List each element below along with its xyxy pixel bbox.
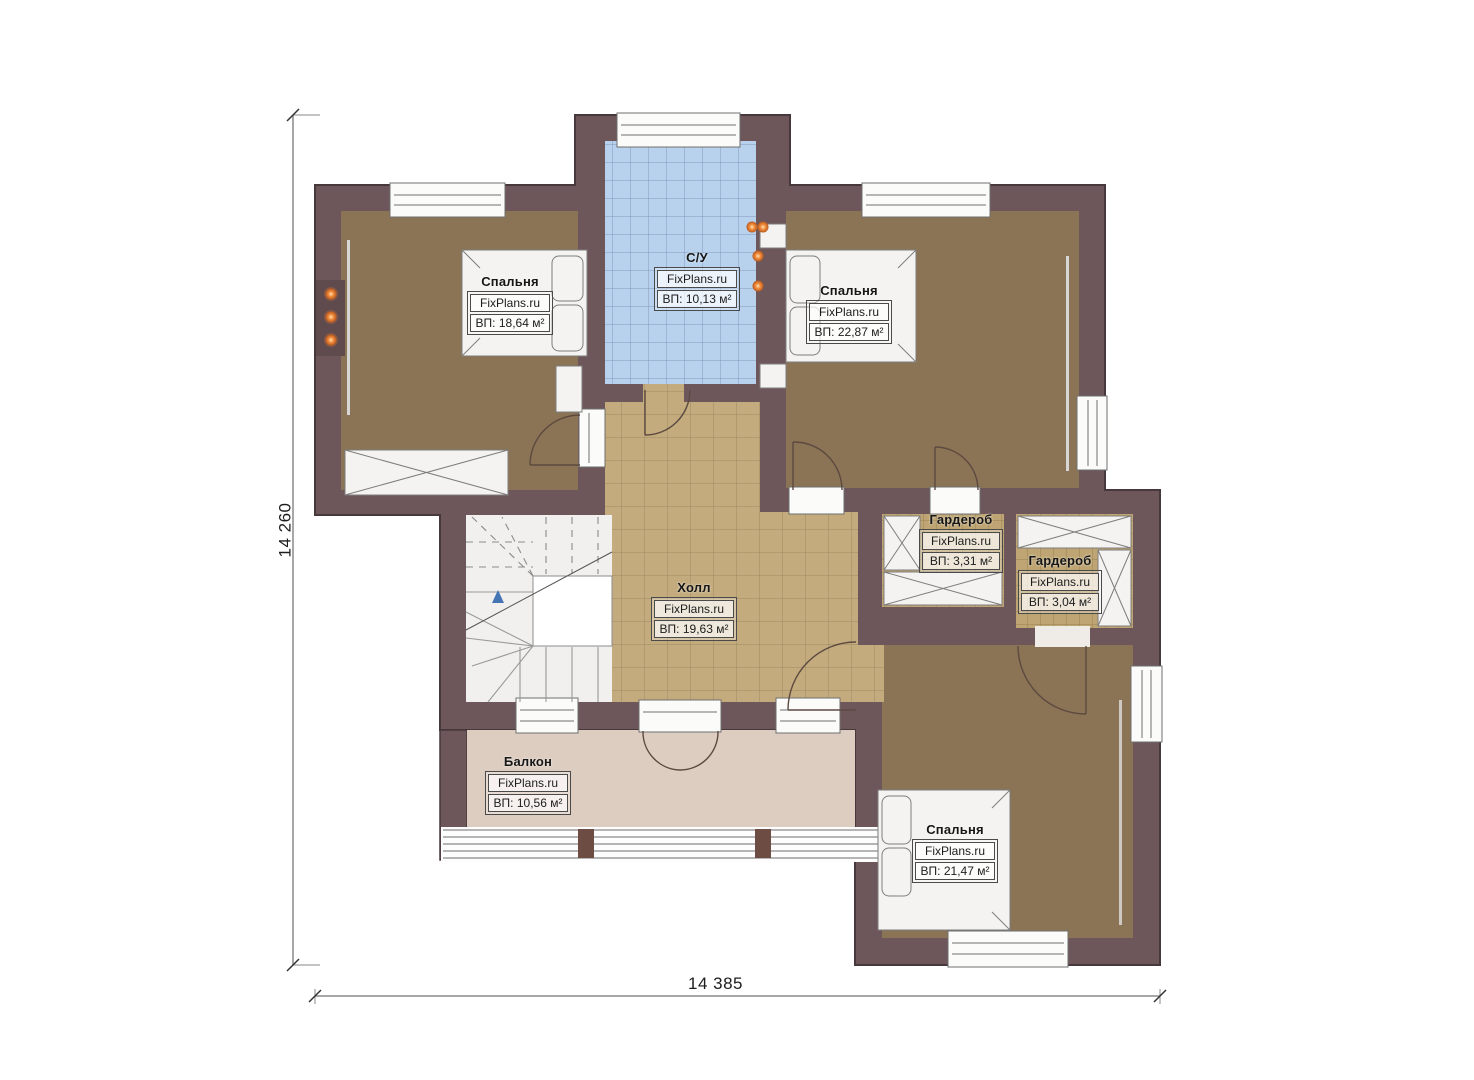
stair-well — [533, 576, 612, 646]
nightstand — [760, 364, 786, 388]
room-name: Холл — [651, 580, 737, 595]
room-name: Спальня — [806, 283, 892, 298]
room-label-bedroom-bottom: Спальня FixPlans.ru ВП: 21,47 м² — [912, 822, 998, 883]
room-area: ВП: 18,64 м² — [470, 314, 550, 332]
nightstand — [556, 366, 582, 412]
dimension-width-label: 14 385 — [688, 974, 743, 994]
room-name: Спальня — [467, 274, 553, 289]
room-info-box: FixPlans.ru ВП: 22,87 м² — [806, 300, 892, 344]
room-info-box: FixPlans.ru ВП: 3,31 м² — [919, 529, 1003, 573]
window-bedroom-bottom — [948, 931, 1068, 967]
curtain — [1066, 256, 1069, 471]
room-label-balcony: Балкон FixPlans.ru ВП: 10,56 м² — [485, 754, 571, 815]
room-watermark: FixPlans.ru — [657, 270, 737, 288]
room-name: Гардероб — [1018, 553, 1102, 568]
room-label-wardrobe-2: Гардероб FixPlans.ru ВП: 3,04 м² — [1018, 553, 1102, 614]
window-bedroom-top-left — [390, 183, 505, 217]
window-balcony-left — [516, 698, 578, 733]
room-name: Балкон — [485, 754, 571, 769]
railing-post — [755, 829, 771, 858]
window-bedroom-top-right-side — [1077, 396, 1107, 470]
room-label-bedroom-top-left: Спальня FixPlans.ru ВП: 18,64 м² — [467, 274, 553, 335]
room-name: Спальня — [912, 822, 998, 837]
room-label-bedroom-top-right: Спальня FixPlans.ru ВП: 22,87 м² — [806, 283, 892, 344]
closet-bedroom-top-left — [345, 450, 508, 495]
window-bedroom-top-right — [862, 183, 990, 217]
window-wing-right — [1131, 666, 1162, 742]
curtain — [347, 240, 350, 415]
room-watermark: FixPlans.ru — [654, 600, 734, 618]
room-area: ВП: 3,04 м² — [1021, 593, 1099, 611]
room-info-box: FixPlans.ru ВП: 18,64 м² — [467, 291, 553, 335]
room-watermark: FixPlans.ru — [488, 774, 568, 792]
room-name: Гардероб — [919, 512, 1003, 527]
room-watermark: FixPlans.ru — [809, 303, 889, 321]
room-watermark: FixPlans.ru — [922, 532, 1000, 550]
room-label-wardrobe-1: Гардероб FixPlans.ru ВП: 3,31 м² — [919, 512, 1003, 573]
balcony-railing — [441, 827, 881, 862]
room-watermark: FixPlans.ru — [470, 294, 550, 312]
room-area: ВП: 21,47 м² — [915, 862, 995, 880]
room-info-box: FixPlans.ru ВП: 3,04 м² — [1018, 570, 1102, 614]
room-info-box: FixPlans.ru ВП: 10,56 м² — [485, 771, 571, 815]
room-area: ВП: 22,87 м² — [809, 323, 889, 341]
window-bathroom — [617, 113, 740, 147]
room-info-box: FixPlans.ru ВП: 19,63 м² — [651, 597, 737, 641]
room-area: ВП: 3,31 м² — [922, 552, 1000, 570]
room-info-box: FixPlans.ru ВП: 21,47 м² — [912, 839, 998, 883]
floor-plan-drawing — [0, 0, 1474, 1080]
room-name: С/У — [654, 250, 740, 265]
room-area: ВП: 19,63 м² — [654, 620, 734, 638]
railing-post — [578, 829, 594, 858]
room-watermark: FixPlans.ru — [1021, 573, 1099, 591]
dimension-height-label: 14 260 — [276, 503, 296, 558]
curtain — [1119, 700, 1122, 925]
window-balcony-right — [776, 698, 840, 733]
room-label-hall: Холл FixPlans.ru ВП: 19,63 м² — [651, 580, 737, 641]
floor-plan-page: Спальня FixPlans.ru ВП: 18,64 м² С/У Fix… — [0, 0, 1474, 1080]
room-area: ВП: 10,56 м² — [488, 794, 568, 812]
room-watermark: FixPlans.ru — [915, 842, 995, 860]
room-label-bathroom: С/У FixPlans.ru ВП: 10,13 м² — [654, 250, 740, 311]
room-info-box: FixPlans.ru ВП: 10,13 м² — [654, 267, 740, 311]
room-area: ВП: 10,13 м² — [657, 290, 737, 308]
